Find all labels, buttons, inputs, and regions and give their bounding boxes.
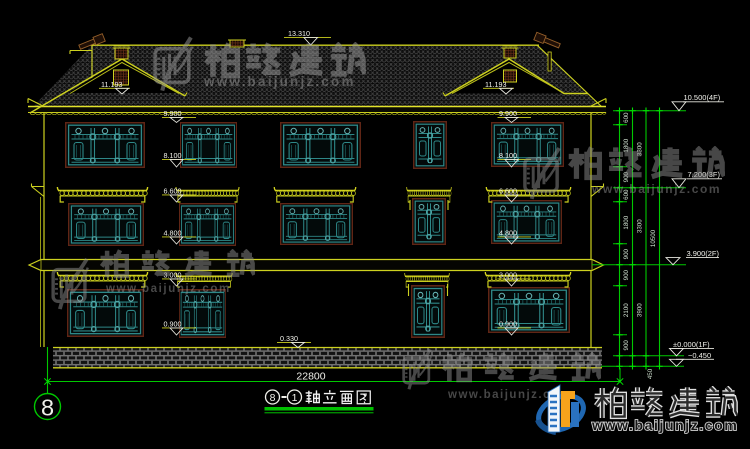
svg-text:3.900(2F): 3.900(2F) (687, 249, 720, 258)
svg-text:−0.450: −0.450 (688, 351, 711, 360)
svg-text:www.baijunjz.com: www.baijunjz.com (203, 74, 356, 89)
svg-text:900: 900 (623, 340, 630, 351)
svg-text:10500: 10500 (650, 229, 657, 247)
svg-text:8.100: 8.100 (164, 151, 182, 160)
svg-text:www.baijunjz.com: www.baijunjz.com (105, 283, 231, 295)
svg-text:8: 8 (270, 392, 276, 404)
svg-text:8.100: 8.100 (499, 151, 517, 160)
svg-text:1: 1 (292, 392, 298, 404)
svg-text:4.800: 4.800 (164, 229, 182, 238)
svg-text:0.900: 0.900 (164, 320, 182, 329)
svg-text:3900: 3900 (637, 303, 644, 317)
svg-text:22800: 22800 (296, 371, 325, 383)
svg-text:0.330: 0.330 (280, 334, 298, 343)
svg-text:11.193: 11.193 (485, 80, 506, 89)
svg-text:www.baijunjz.com: www.baijunjz.com (591, 182, 721, 196)
svg-text:1800: 1800 (623, 215, 630, 229)
svg-text:4.800: 4.800 (499, 229, 517, 238)
svg-text:8: 8 (41, 395, 54, 421)
svg-text:3.000: 3.000 (499, 271, 517, 280)
svg-text:10.500(4F): 10.500(4F) (684, 93, 721, 102)
svg-text:11.193: 11.193 (101, 80, 122, 89)
svg-text:450: 450 (647, 368, 654, 379)
svg-text:9.900: 9.900 (499, 109, 517, 118)
svg-text:3300: 3300 (637, 219, 644, 233)
svg-text:13.310: 13.310 (288, 29, 310, 38)
svg-text:6.600: 6.600 (499, 187, 517, 196)
svg-text:2100: 2100 (623, 303, 630, 317)
svg-text:900: 900 (623, 248, 630, 259)
svg-text:9.900: 9.900 (164, 109, 182, 118)
svg-text:6.600: 6.600 (164, 187, 182, 196)
svg-text:www.baijunjz.com: www.baijunjz.com (591, 417, 738, 433)
svg-text:0.900: 0.900 (499, 320, 517, 329)
svg-text:900: 900 (623, 269, 630, 280)
svg-text:600: 600 (623, 112, 630, 123)
svg-text:±0.000(1F): ±0.000(1F) (673, 340, 710, 349)
